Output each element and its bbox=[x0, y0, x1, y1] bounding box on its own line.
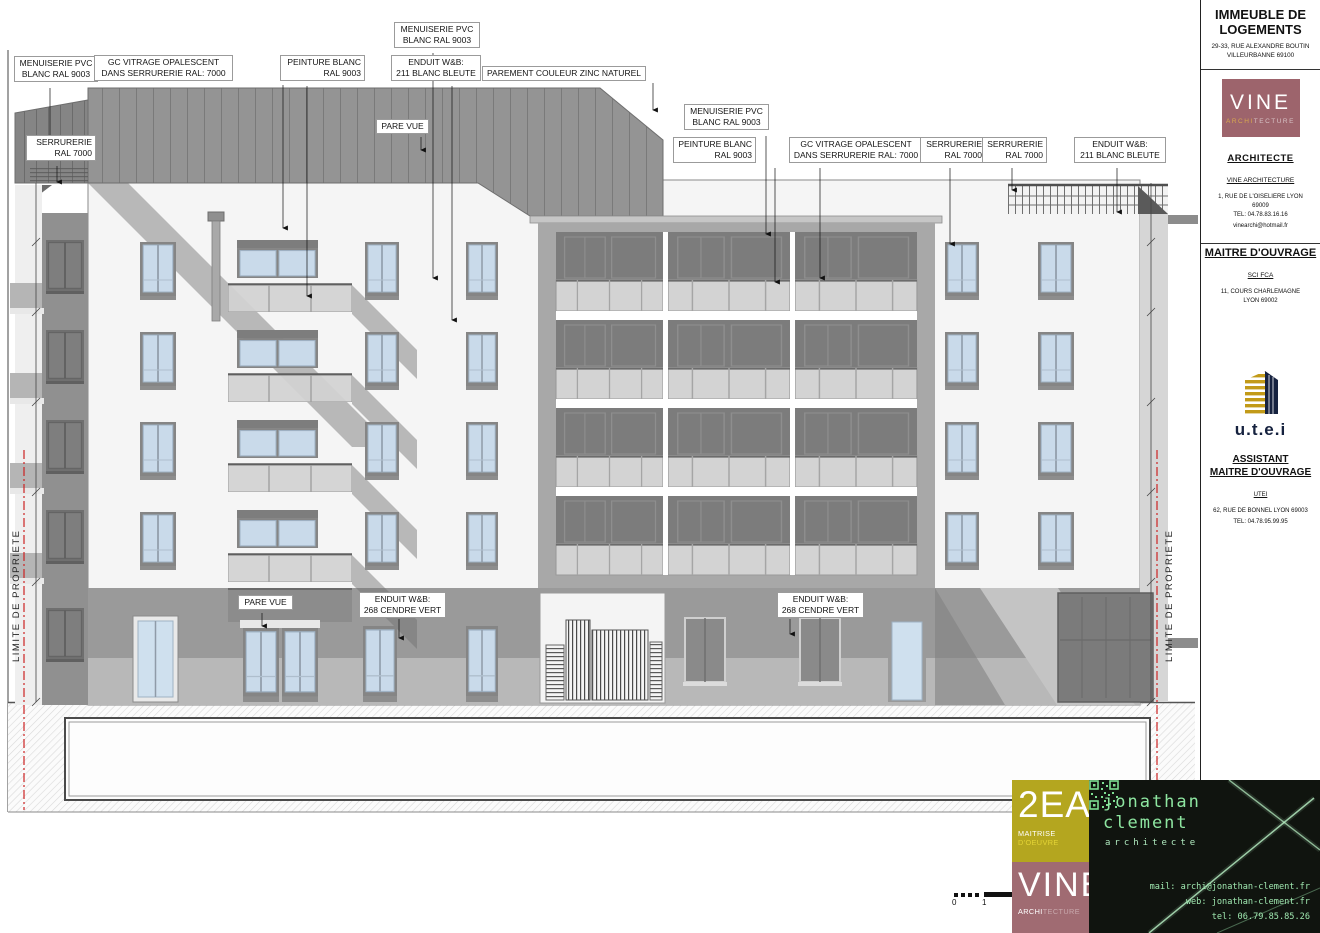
owner-name: SCI FCA bbox=[1201, 272, 1320, 279]
property-limit-label-left: LIMITE DE PROPRIETE bbox=[11, 530, 22, 663]
annotation-label: PEINTURE BLANC RAL 9003 bbox=[280, 55, 365, 81]
card-role: architecte bbox=[1105, 838, 1199, 848]
project-address: 29-33, RUE ALEXANDRE BOUTIN VILLEURBANNE… bbox=[1201, 43, 1320, 61]
vine-logo-sub-rest: TECTURE bbox=[1254, 118, 1295, 125]
owner-address: 11, COURS CHARLEMAGNE LYON 69002 bbox=[1201, 288, 1320, 306]
assistant-address: 62, RUE DE BONNEL LYON 69003 bbox=[1201, 507, 1320, 516]
annotation-label: ENDUIT W&B: 211 BLANC BLEUTE bbox=[391, 55, 481, 81]
qr-code-icon bbox=[1089, 780, 1119, 810]
2ea-sub-white: MAITRISE bbox=[1018, 829, 1056, 838]
vine-architecture-logo: VINE ARCHITECTURE bbox=[1222, 79, 1300, 137]
vine-bottom-name: VINE bbox=[1018, 864, 1083, 907]
assistant-tel: TEL: 04.78.95.99.95 bbox=[1201, 518, 1320, 527]
shuttered-window bbox=[683, 618, 727, 686]
vine-logo-name: VINE bbox=[1230, 91, 1291, 115]
architect-email: vinearchi@hotmail.fr bbox=[1201, 222, 1320, 231]
brand-strip: 2EA MAITRISE D'OEUVRE VINE ARCHITECTURE … bbox=[1012, 780, 1320, 933]
utei-logo: u.t.e.i bbox=[1201, 368, 1320, 440]
divider bbox=[1201, 243, 1320, 244]
assistant-name: UTEI bbox=[1201, 492, 1320, 498]
2ea-sub-accent: D'OEUVRE bbox=[1018, 838, 1059, 847]
annotation-label: SERRURERIE RAL 7000 bbox=[26, 135, 96, 161]
card-contact: mail: archi@jonathan-clement.fr web: jon… bbox=[1150, 880, 1310, 925]
vine-logo-bottom: VINE ARCHITECTURE bbox=[1012, 862, 1089, 933]
architect-firm: VINE ARCHITECTURE bbox=[1201, 177, 1320, 184]
annotation-label: SERRURERIE RAL 7000 bbox=[982, 137, 1047, 163]
balcony-railing bbox=[228, 554, 352, 582]
balcony-railing bbox=[228, 284, 352, 312]
owner-heading: MAITRE D'OUVRAGE bbox=[1201, 247, 1320, 259]
annotation-label: ENDUIT W&B: 268 CENDRE VERT bbox=[359, 592, 446, 618]
annotation-label: ENDUIT W&B: 211 BLANC BLEUTE bbox=[1074, 137, 1166, 163]
annotation-label: ENDUIT W&B: 268 CENDRE VERT bbox=[777, 592, 864, 618]
architect-business-card: jonathan clement architecte mail: archi@… bbox=[1089, 780, 1320, 933]
drawing-sheet: MENUISERIE PVC BLANC RAL 9003 GC VITRAGE… bbox=[0, 0, 1320, 933]
annotation-label: GC VITRAGE OPALESCENT DANS SERRURERIE RA… bbox=[94, 55, 233, 81]
2ea-logo-name: 2EA bbox=[1018, 784, 1083, 827]
balcony-railing bbox=[228, 464, 352, 492]
vine-bottom-sub: ARCHITECTURE bbox=[1018, 907, 1083, 916]
scale-label-1: 1 bbox=[982, 898, 986, 907]
card-tel: tel: 06.79.85.85.26 bbox=[1150, 910, 1310, 925]
annotation-label: PARE VUE bbox=[376, 119, 429, 134]
annotation-label: MENUISERIE PVC BLANC RAL 9003 bbox=[14, 56, 98, 82]
property-limit-label-right: LIMITE DE PROPRIETE bbox=[1164, 530, 1175, 663]
vine-bottom-sub-rest: TECTURE bbox=[1043, 907, 1080, 916]
annotation-label: GC VITRAGE OPALESCENT DANS SERRURERIE RA… bbox=[789, 137, 923, 163]
architect-address: 1, RUE DE L'OISELIERE LYON 69009 TEL: 04… bbox=[1201, 193, 1320, 220]
entrance-gate bbox=[540, 593, 665, 703]
2ea-logo-sub: MAITRISE D'OEUVRE bbox=[1018, 829, 1083, 847]
annotation-label: MENUISERIE PVC BLANC RAL 9003 bbox=[684, 104, 769, 130]
roof-vent-pipe bbox=[212, 221, 220, 321]
card-mail: mail: archi@jonathan-clement.fr bbox=[1150, 880, 1310, 895]
annotation-label: PAREMENT COULEUR ZINC NATUREL bbox=[482, 66, 646, 81]
assistant-heading: ASSISTANT MAITRE D'OUVRAGE bbox=[1201, 453, 1320, 479]
annotation-label: PARE VUE bbox=[238, 595, 293, 610]
2ea-logo: 2EA MAITRISE D'OEUVRE bbox=[1012, 780, 1089, 862]
scale-label-0: 0 bbox=[952, 898, 956, 907]
basement-outline bbox=[65, 718, 1150, 800]
annotation-label: PEINTURE BLANC RAL 9003 bbox=[673, 137, 756, 163]
vine-logo-sub-accent: ARCHI bbox=[1226, 118, 1254, 125]
central-balcony-block bbox=[530, 216, 942, 588]
scale-bar-dashes bbox=[954, 893, 982, 897]
shuttered-window bbox=[798, 618, 842, 686]
annotation-label: SERRURERIE RAL 7000 bbox=[920, 137, 986, 163]
scale-bar-solid bbox=[984, 892, 1012, 897]
divider bbox=[1201, 69, 1320, 70]
architect-heading: ARCHITECTE bbox=[1201, 153, 1320, 164]
annotation-label: MENUISERIE PVC BLANC RAL 9003 bbox=[394, 22, 480, 48]
vine-logo-sub: ARCHITECTURE bbox=[1226, 118, 1295, 125]
garage-door bbox=[1058, 593, 1153, 702]
vine-bottom-sub-accent: ARCHI bbox=[1018, 907, 1043, 916]
utei-logo-icon bbox=[1235, 368, 1287, 414]
balcony-railing bbox=[228, 374, 352, 402]
utei-logo-text: u.t.e.i bbox=[1201, 420, 1320, 440]
project-title: IMMEUBLE DE LOGEMENTS bbox=[1201, 8, 1320, 38]
card-web: web: jonathan-clement.fr bbox=[1150, 895, 1310, 910]
left-side-strip bbox=[15, 185, 88, 705]
glass-door bbox=[888, 618, 926, 702]
